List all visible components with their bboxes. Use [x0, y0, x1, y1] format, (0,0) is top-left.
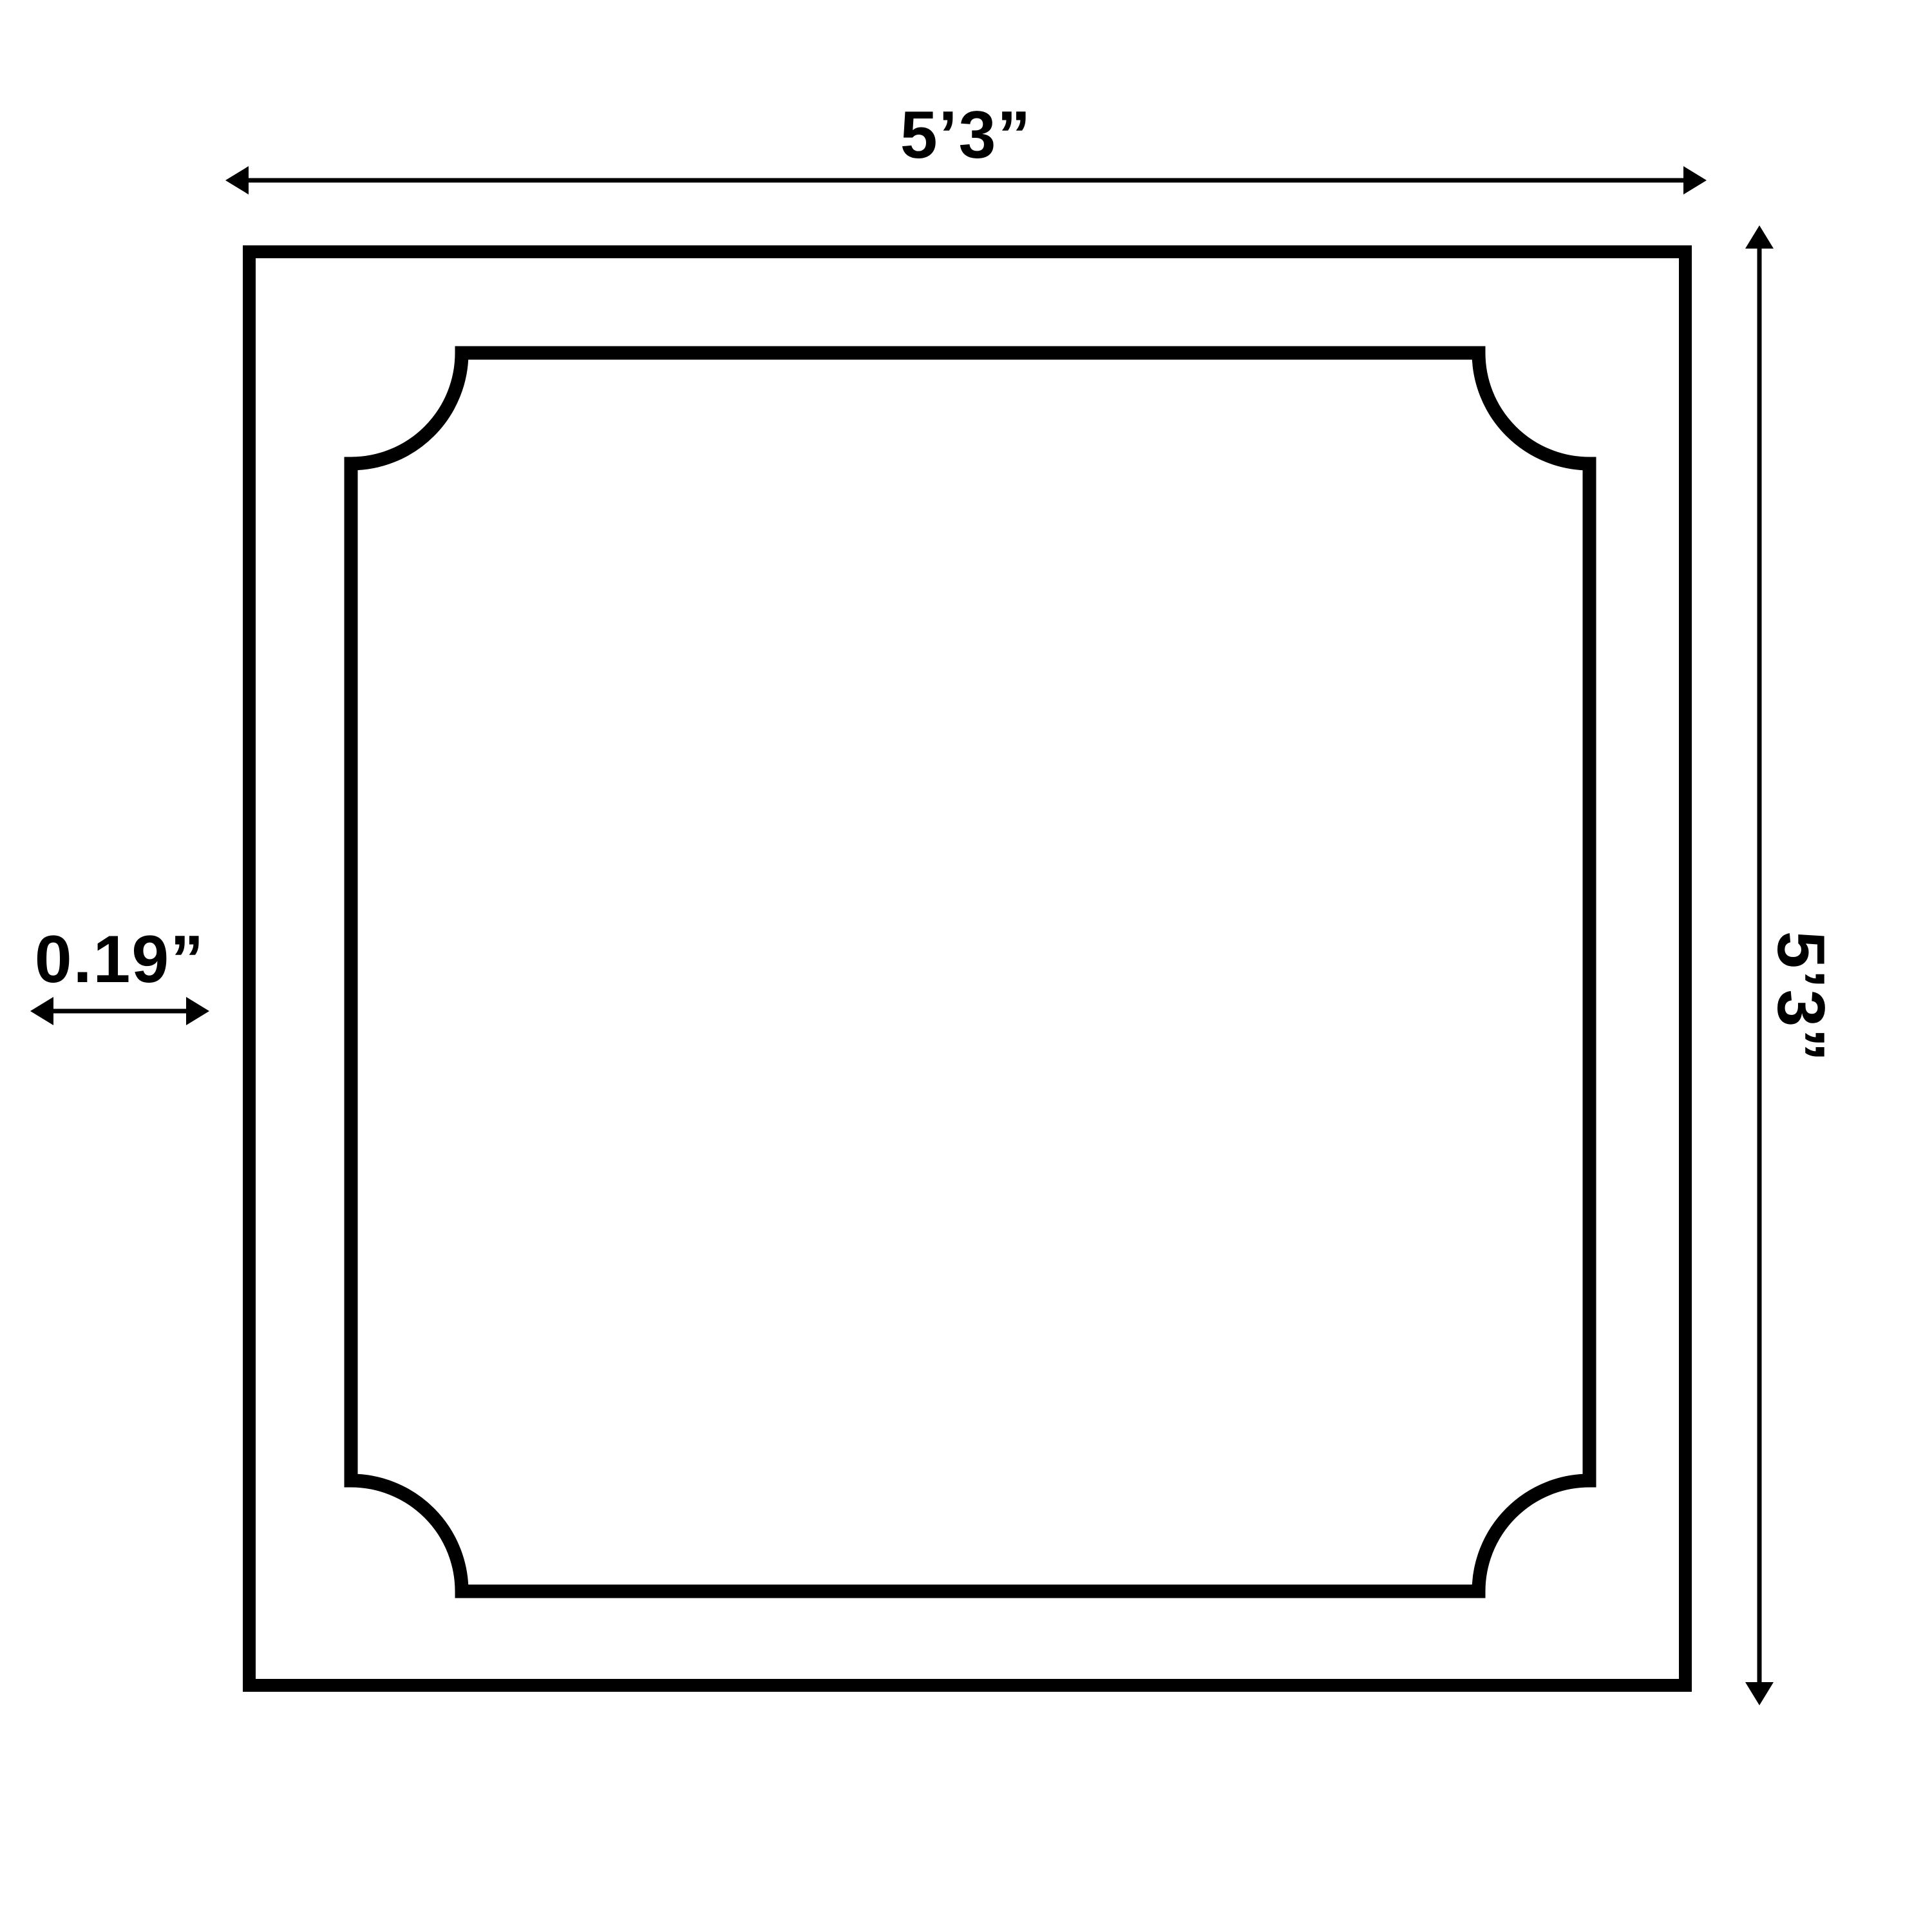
tile-outer-edge-outline: [249, 252, 1685, 1685]
dimension-diagram-page: { "page": { "background": "#ffffff" }, "…: [0, 0, 1932, 1932]
tile-inner-panel-outline: [351, 353, 1589, 1591]
arrowhead-right-icon: [186, 997, 209, 1025]
arrowhead-left-icon: [225, 166, 249, 194]
tile-dimension-drawing: [0, 0, 1932, 1932]
thickness-dimension-arrow: [30, 997, 209, 1025]
arrowhead-left-icon: [30, 997, 53, 1025]
arrowhead-right-icon: [1683, 166, 1707, 194]
thickness-dimension-label: 0.19”: [35, 926, 205, 993]
arrowhead-down-icon: [1745, 1682, 1774, 1705]
arrowhead-up-icon: [1745, 225, 1774, 249]
width-dimension-label: 5’3”: [900, 102, 1032, 169]
height-dimension-label: 5’3”: [1767, 931, 1834, 1063]
